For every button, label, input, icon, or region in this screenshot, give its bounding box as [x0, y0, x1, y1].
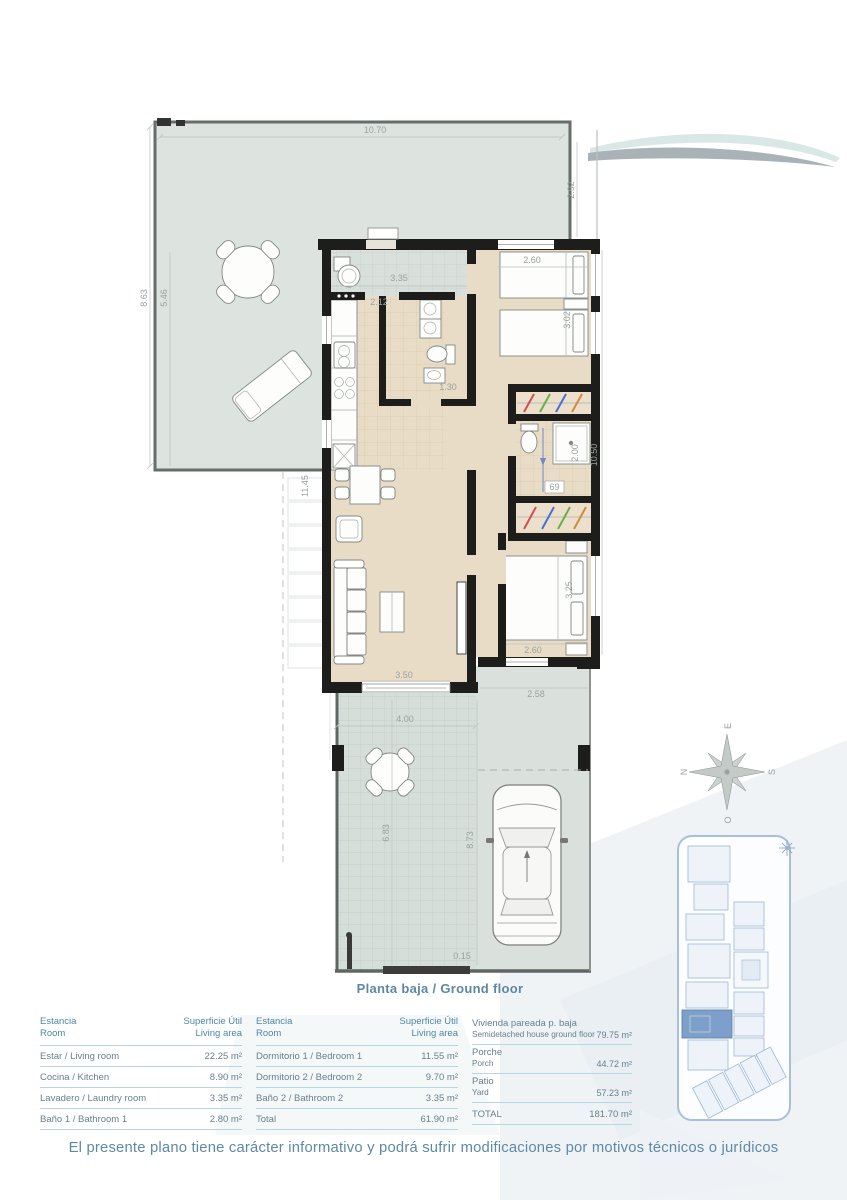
dimension-label: 2.92 — [566, 181, 576, 199]
site-plan-inset — [678, 836, 795, 1120]
gate-post — [176, 120, 185, 126]
room-area: 9.70 m² — [426, 1072, 458, 1083]
porch-table — [364, 746, 416, 798]
area-tables: Estancia Room Superficie Útil Living are… — [40, 1016, 632, 1130]
dimension-label: 2.58 — [527, 689, 545, 699]
compass-south-label: S — [767, 769, 777, 775]
dimension-label: 3.02 — [562, 311, 572, 329]
compass-east-label: E — [723, 723, 733, 729]
summary-name: Porche — [472, 1047, 632, 1058]
nightstand — [564, 299, 588, 309]
table-row: Lavadero / Laundry room3.35 m² — [40, 1088, 242, 1109]
dimension-label: 10.70 — [364, 125, 387, 135]
table-header: Estancia Room Superficie Útil Living are… — [256, 1016, 458, 1046]
summary-area: 57.23 m² — [596, 1088, 632, 1098]
room-name: Dormitorio 2 / Bedroom 2 — [256, 1072, 362, 1083]
table-row: TOTAL181.70 m² — [472, 1103, 632, 1125]
header-living-area: Living area — [196, 1028, 242, 1039]
room-area: 22.25 m² — [205, 1051, 243, 1062]
porch-and-parking — [332, 666, 591, 974]
dimension-label: 8.63 — [139, 289, 149, 307]
summary-name: Patio — [472, 1076, 632, 1087]
floor-plan-page: 10.70 2.92 8.63 5.46 11.45 3.35 2.12 2.6… — [0, 0, 847, 1200]
dimension-label: 0.15 — [453, 951, 471, 961]
room-name: Baño 1 / Bathroom 1 — [40, 1114, 127, 1125]
tv-sideboard — [457, 582, 466, 654]
room-name: Total — [256, 1114, 276, 1125]
table-row: Estar / Living room22.25 m² — [40, 1046, 242, 1067]
table-header: Estancia Room Superficie Útil Living are… — [40, 1016, 242, 1046]
compass-west-label: O — [723, 816, 733, 823]
dimension-label: 4.00 — [396, 714, 414, 724]
dimension-label: 6.83 — [381, 824, 391, 842]
wardrobe-1 — [516, 392, 591, 414]
dimension-label: 3.35 — [390, 273, 408, 283]
room-area: 3.35 m² — [210, 1093, 242, 1104]
dimension-label: 3.25 — [564, 581, 574, 599]
summary-area: 79.75 m² — [596, 1030, 632, 1040]
room-name: Lavadero / Laundry room — [40, 1093, 146, 1104]
table-row: Baño 1 / Bathroom 12.80 m² — [40, 1109, 242, 1130]
dimension-label: 8.73 — [465, 831, 475, 849]
header-room: Room — [40, 1028, 65, 1039]
header-superficie: Superficie Útil — [183, 1016, 242, 1027]
room-name: Estar / Living room — [40, 1051, 119, 1062]
decorative-swoosh — [588, 134, 840, 167]
sofa — [334, 560, 366, 664]
room-name: Cocina / Kitchen — [40, 1072, 109, 1083]
plan-caption: Planta baja / Ground floor — [300, 981, 580, 996]
table-row: Dormitorio 2 / Bedroom 29.70 m² — [256, 1067, 458, 1088]
table-row: Patio Yard57.23 m² — [472, 1074, 632, 1103]
bedroom-2 — [505, 541, 587, 655]
room-area: 61.90 m² — [421, 1114, 459, 1125]
summary-table: Vivienda pareada p. baja Semidetached ho… — [472, 1016, 632, 1130]
room-area: 8.90 m² — [210, 1072, 242, 1083]
kitchen-sink — [334, 342, 355, 368]
header-superficie: Superficie Útil — [399, 1016, 458, 1027]
header-estancia: Estancia — [256, 1016, 292, 1027]
dimension-label: 1.30 — [439, 382, 457, 392]
room-area: 2.80 m² — [210, 1114, 242, 1125]
nightstand — [566, 643, 587, 655]
table-row: Porche Porch44.72 m² — [472, 1045, 632, 1074]
header-living-area: Living area — [412, 1028, 458, 1039]
dimension-label: 2.60 — [524, 645, 542, 655]
header-room: Room — [256, 1028, 281, 1039]
toilet-1 — [427, 346, 447, 362]
porch-area — [337, 693, 476, 972]
summary-name: TOTAL — [472, 1109, 502, 1120]
compass-north-label: N — [679, 769, 689, 776]
dimension-label: 69 — [549, 482, 559, 492]
house — [318, 228, 600, 693]
patio-table — [214, 238, 282, 306]
room-area: 11.55 m² — [421, 1051, 458, 1062]
room-name: Baño 2 / Bathroom 2 — [256, 1093, 343, 1104]
table-row: Vivienda pareada p. baja Semidetached ho… — [472, 1016, 632, 1045]
dimension-label: 2.12 — [370, 297, 388, 307]
gate-post — [157, 118, 171, 126]
wardrobe-2 — [516, 503, 591, 531]
summary-name-en: Semidetached house ground floor — [472, 1030, 595, 1040]
table-row: Baño 2 / Bathroom 23.35 m² — [256, 1088, 458, 1109]
entry-step — [368, 228, 398, 239]
disclaimer-text: El presente plano tiene carácter informa… — [0, 1140, 847, 1156]
summary-name-en: Yard — [472, 1088, 489, 1098]
summary-area: 44.72 m² — [596, 1059, 632, 1069]
table-row: Total61.90 m² — [256, 1109, 458, 1130]
coffee-table — [380, 592, 404, 632]
table-row: Cocina / Kitchen8.90 m² — [40, 1067, 242, 1088]
room-name: Dormitorio 1 / Bedroom 1 — [256, 1051, 362, 1062]
car-icon — [486, 785, 568, 945]
nightstand — [566, 541, 587, 553]
summary-name: Vivienda pareada p. baja — [472, 1018, 632, 1029]
room-table-left: Estancia Room Superficie Útil Living are… — [40, 1016, 242, 1130]
room-area: 3.35 m² — [426, 1093, 458, 1104]
highlighted-unit — [682, 1010, 732, 1038]
dimension-label: 3.50 — [395, 670, 413, 680]
table-row: Dormitorio 1 / Bedroom 111.55 m² — [256, 1046, 458, 1067]
toilet-2 — [521, 431, 537, 453]
dimension-label: 2.60 — [523, 255, 541, 265]
dimension-label: 11.45 — [300, 475, 310, 497]
dimension-label: 5.46 — [159, 289, 169, 307]
dimension-label: 2.00 — [570, 444, 580, 462]
header-estancia: Estancia — [40, 1016, 76, 1027]
room-table-middle: Estancia Room Superficie Útil Living are… — [256, 1016, 458, 1130]
dimension-label: 10.50 — [589, 444, 599, 467]
summary-area: 181.70 m² — [589, 1109, 632, 1120]
kitchen — [331, 300, 357, 470]
summary-name-en: Porch — [472, 1059, 493, 1069]
